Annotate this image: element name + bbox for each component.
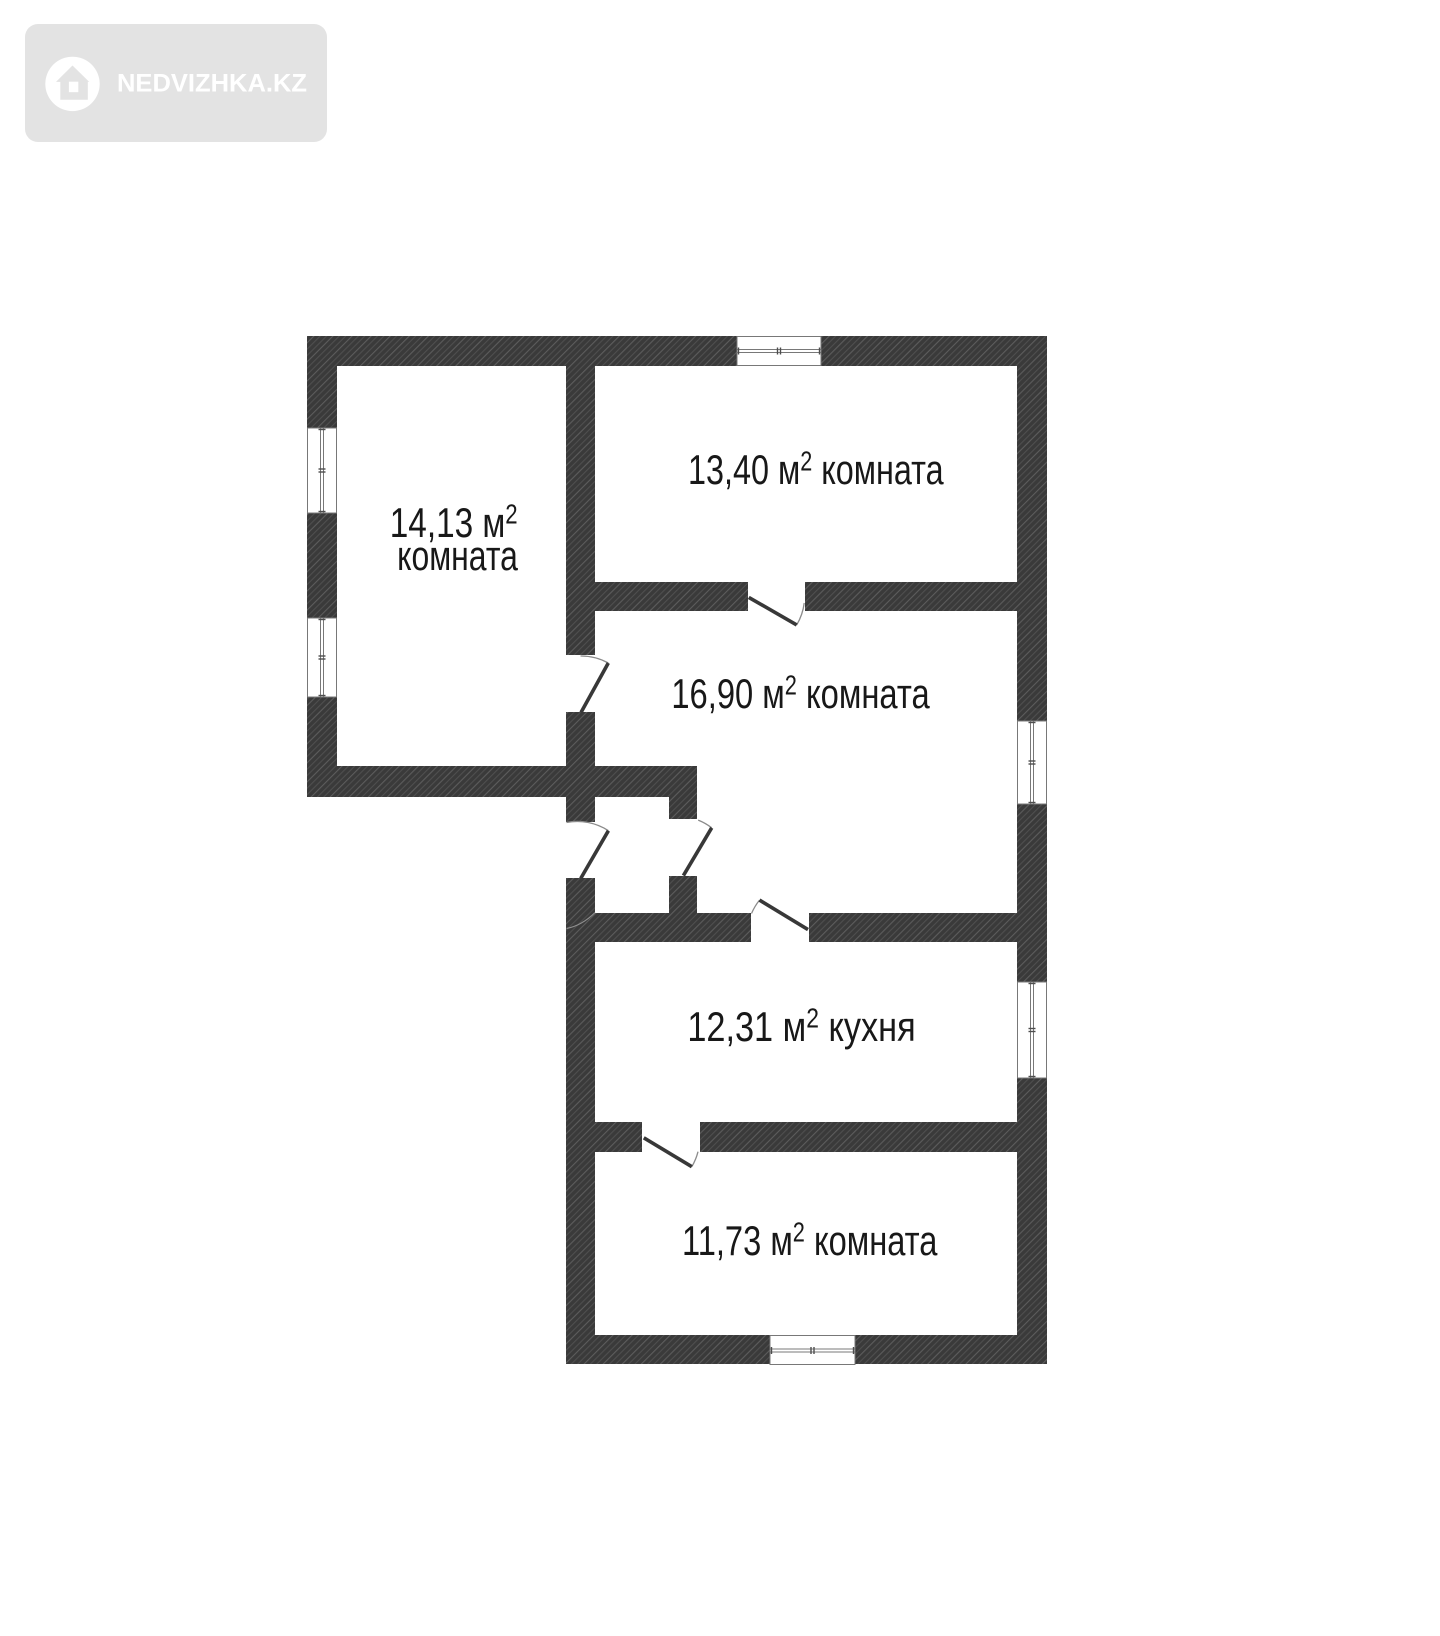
svg-text:NEDVIZHKA.KZ: NEDVIZHKA.KZ	[117, 69, 307, 97]
svg-text:11,73 м2 комната: 11,73 м2 комната	[682, 1217, 938, 1264]
svg-text:13,40 м2 комната: 13,40 м2 комната	[688, 446, 944, 493]
svg-text:16,90 м2 комната: 16,90 м2 комната	[671, 670, 929, 717]
svg-text:12,31 м2 кухня: 12,31 м2 кухня	[687, 1003, 915, 1050]
svg-text:комната: комната	[397, 532, 518, 579]
